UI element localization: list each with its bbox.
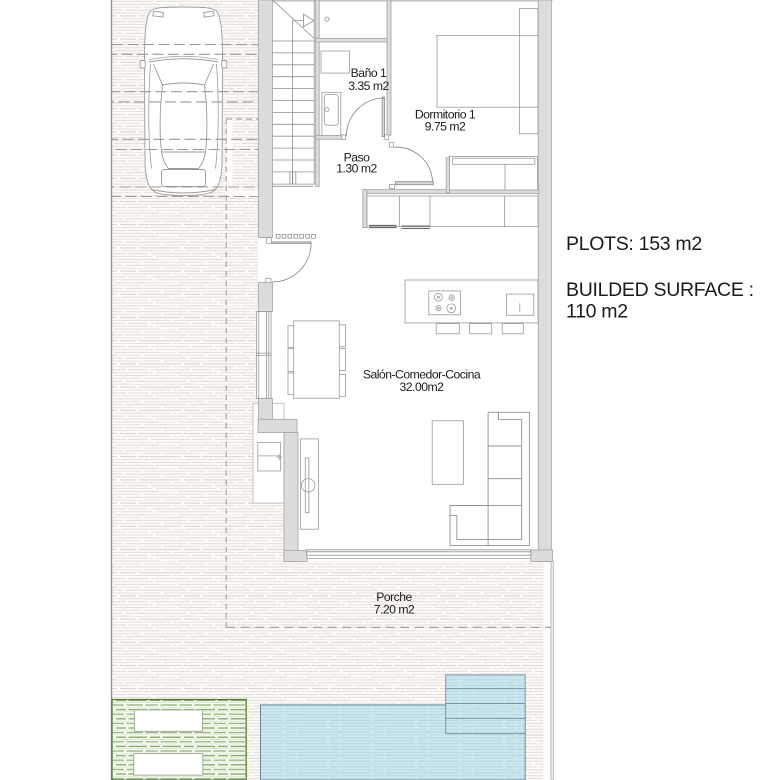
- svg-text:Baño 1: Baño 1: [351, 66, 387, 80]
- svg-text:1.30 m2: 1.30 m2: [336, 161, 377, 175]
- svg-text:32.00m2: 32.00m2: [400, 380, 445, 394]
- svg-text:110 m2: 110 m2: [566, 301, 628, 323]
- svg-text:7.20 m2: 7.20 m2: [374, 602, 415, 616]
- svg-text:PLOTS: 153 m2: PLOTS: 153 m2: [566, 233, 702, 255]
- svg-text:3.35 m2: 3.35 m2: [348, 79, 389, 93]
- svg-text:9.75 m2: 9.75 m2: [425, 120, 466, 134]
- svg-text:BUILDED SURFACE :: BUILDED SURFACE :: [566, 279, 754, 301]
